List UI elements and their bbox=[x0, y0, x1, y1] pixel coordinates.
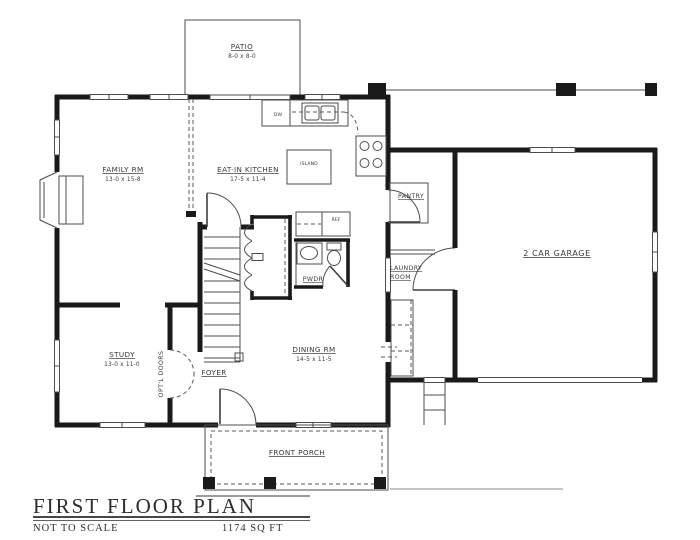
powder-label: PWDR bbox=[303, 276, 324, 283]
garage-door bbox=[478, 378, 642, 383]
dining-dims: 14-5 x 11-5 bbox=[296, 357, 332, 363]
back-door-threshold bbox=[424, 378, 445, 383]
kitchen-island bbox=[287, 150, 331, 184]
newel-post bbox=[235, 353, 243, 361]
porch-post bbox=[203, 477, 215, 489]
bay-window bbox=[40, 172, 57, 228]
kitchen-dims: 17-5 x 11-4 bbox=[230, 177, 266, 183]
foyer-label: FOYER bbox=[201, 368, 226, 377]
fireplace bbox=[59, 176, 83, 224]
stove bbox=[356, 136, 386, 176]
refrigerator-label: REF bbox=[331, 217, 340, 223]
study-dims: 13-0 x 11-0 bbox=[104, 362, 140, 368]
patio-label: PATIO bbox=[231, 42, 253, 51]
front-door bbox=[220, 389, 256, 425]
area-note: 1174 SQ FT bbox=[222, 523, 284, 534]
pantry-closet bbox=[390, 183, 428, 223]
dishwasher-label: DW bbox=[274, 112, 283, 118]
optional-doors-note: OPT'L DOORS bbox=[158, 351, 165, 398]
study-label: STUDY bbox=[109, 350, 135, 359]
floor-plan-page: PATIO 8-0 x 8-0 FAMILY RM 13-0 x 15-8 EA… bbox=[0, 0, 700, 540]
toilet bbox=[327, 243, 341, 266]
eave-line bbox=[368, 83, 657, 96]
back-steps bbox=[424, 380, 445, 425]
optional-french-doors bbox=[170, 350, 194, 398]
stove-burners bbox=[360, 142, 382, 168]
patio-dims: 8-0 x 8-0 bbox=[228, 54, 256, 60]
plan-title: FIRST FLOOR PLAN bbox=[33, 494, 256, 518]
floor-plan-drawing: PATIO 8-0 x 8-0 FAMILY RM 13-0 x 15-8 EA… bbox=[0, 0, 700, 540]
kitchen-sink bbox=[302, 103, 338, 123]
laundry-label-1: LAUNDRY bbox=[390, 265, 422, 272]
family-room-dims: 13-0 x 15-8 bbox=[105, 177, 141, 183]
dining-label: DINING RM bbox=[292, 345, 335, 354]
refrigerator-counter bbox=[296, 212, 350, 236]
vanity-sink bbox=[297, 243, 322, 264]
front-porch bbox=[203, 425, 388, 490]
staircase bbox=[204, 227, 243, 362]
porch-post bbox=[374, 477, 386, 489]
pantry-label: PANTRY bbox=[398, 193, 424, 200]
powder-door bbox=[323, 266, 348, 287]
cased-opening-family-kitchen bbox=[186, 99, 196, 217]
basement-stair-door bbox=[207, 193, 241, 227]
porch-post bbox=[264, 477, 276, 489]
title-block: FIRST FLOOR PLAN NOT TO SCALE 1174 SQ FT bbox=[33, 494, 310, 534]
family-room-label: FAMILY RM bbox=[102, 165, 143, 174]
porch-label: FRONT PORCH bbox=[269, 448, 325, 457]
kitchen-label: EAT-IN KITCHEN bbox=[217, 165, 279, 174]
laundry-label-2: ROOM bbox=[390, 274, 411, 281]
closet-divider bbox=[252, 254, 263, 261]
dining-pass-through bbox=[381, 347, 397, 357]
scale-note: NOT TO SCALE bbox=[33, 523, 119, 534]
island-label: ISLAND bbox=[300, 161, 318, 167]
garage-label: 2 CAR GARAGE bbox=[523, 249, 591, 258]
